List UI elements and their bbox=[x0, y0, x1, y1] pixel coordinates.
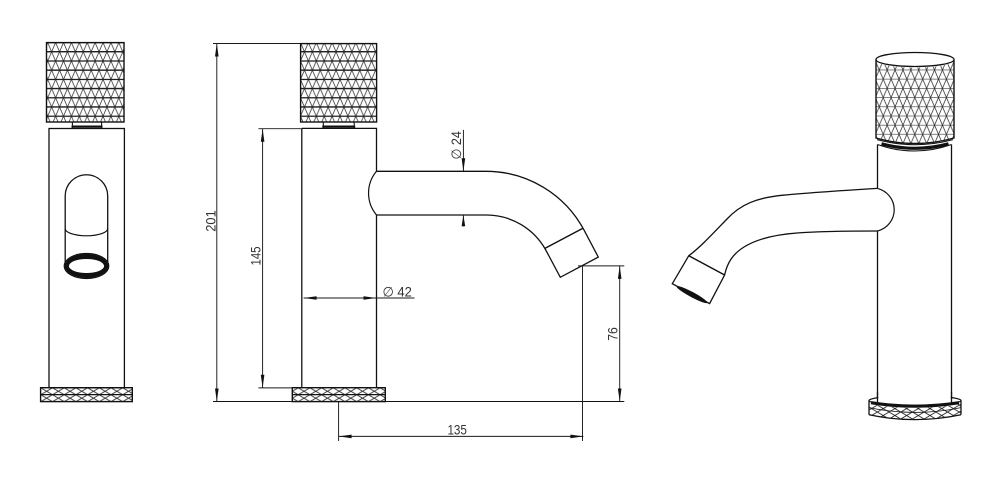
svg-text:∅ 42: ∅ 42 bbox=[382, 284, 412, 299]
svg-text:201: 201 bbox=[204, 210, 219, 232]
svg-text:135: 135 bbox=[447, 423, 467, 438]
svg-text:∅ 24: ∅ 24 bbox=[449, 131, 464, 160]
svg-text:145: 145 bbox=[248, 247, 263, 266]
svg-text:76: 76 bbox=[606, 327, 621, 341]
